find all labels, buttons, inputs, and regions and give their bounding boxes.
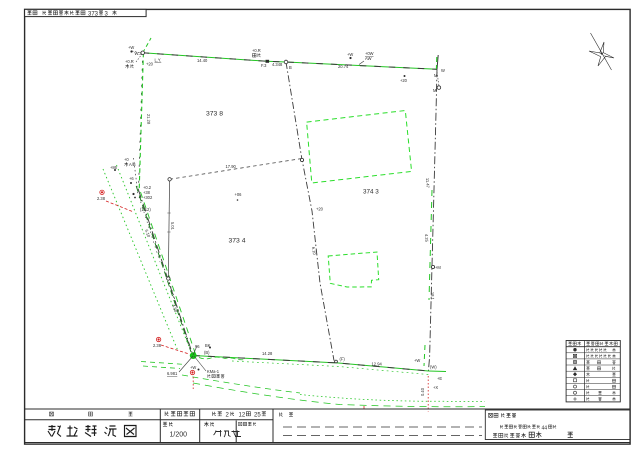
- svg-text:18.1: 18.1: [430, 292, 435, 301]
- svg-text:1/200: 1/200: [170, 432, 188, 439]
- svg-text:+06: +06: [235, 192, 243, 197]
- svg-text:+0.R: +0.R: [125, 59, 134, 64]
- svg-text:14.40: 14.40: [197, 58, 208, 63]
- svg-text:4.25: 4.25: [424, 234, 429, 243]
- svg-text:+0.R: +0.R: [252, 48, 261, 53]
- svg-text:A/B: A/B: [129, 162, 136, 167]
- svg-text:2.38: 2.38: [153, 343, 162, 348]
- svg-text:373 4: 373 4: [229, 238, 246, 245]
- svg-text:W: W: [441, 68, 445, 73]
- svg-text:+E: +E: [437, 376, 442, 381]
- svg-text:AW: AW: [365, 56, 372, 61]
- svg-text:11.47: 11.47: [425, 178, 431, 189]
- svg-text:12.94: 12.94: [372, 362, 383, 367]
- svg-text:+302: +302: [143, 195, 153, 200]
- svg-text:17.90: 17.90: [226, 164, 237, 169]
- svg-text:F.3: F.3: [261, 63, 267, 68]
- svg-text:+W: +W: [347, 52, 353, 57]
- svg-text:+W: +W: [190, 365, 196, 370]
- svg-text:25: 25: [254, 413, 261, 419]
- svg-text:373 8: 373 8: [206, 111, 223, 118]
- svg-text:5.01: 5.01: [170, 222, 175, 231]
- svg-text:+86: +86: [110, 165, 118, 170]
- svg-text:374 3: 374 3: [363, 189, 379, 196]
- svg-text:+20: +20: [400, 78, 408, 83]
- svg-text:6.981: 6.981: [167, 371, 178, 376]
- svg-text:+X: +X: [433, 385, 438, 390]
- svg-text:0.40: 0.40: [420, 387, 425, 396]
- svg-text:+20: +20: [146, 62, 154, 67]
- svg-text:+W: +W: [414, 358, 420, 363]
- svg-text:L.Y.: L.Y.: [155, 58, 162, 63]
- svg-text:12: 12: [239, 413, 246, 419]
- svg-text:KMa-1: KMa-1: [207, 369, 220, 374]
- svg-text:(W): (W): [430, 365, 437, 370]
- svg-text:(B): (B): [204, 350, 210, 355]
- svg-text:+6: +6: [129, 176, 134, 181]
- svg-text:B: B: [289, 65, 292, 70]
- svg-text:+M: +M: [435, 265, 441, 270]
- svg-text:M: M: [433, 88, 437, 93]
- svg-text:14.28: 14.28: [262, 351, 273, 356]
- svg-text:21.28: 21.28: [146, 114, 151, 125]
- svg-text:373: 373: [88, 11, 99, 17]
- svg-text:+20: +20: [316, 207, 324, 212]
- svg-text:(F): (F): [340, 357, 346, 362]
- svg-text:+W: +W: [128, 45, 134, 50]
- svg-text:4.348: 4.348: [272, 62, 283, 67]
- svg-text:(1.12): (1.12): [140, 207, 151, 212]
- svg-text:20.74: 20.74: [338, 64, 349, 69]
- svg-text:2.38: 2.38: [97, 196, 106, 201]
- svg-text:44: 44: [542, 425, 548, 431]
